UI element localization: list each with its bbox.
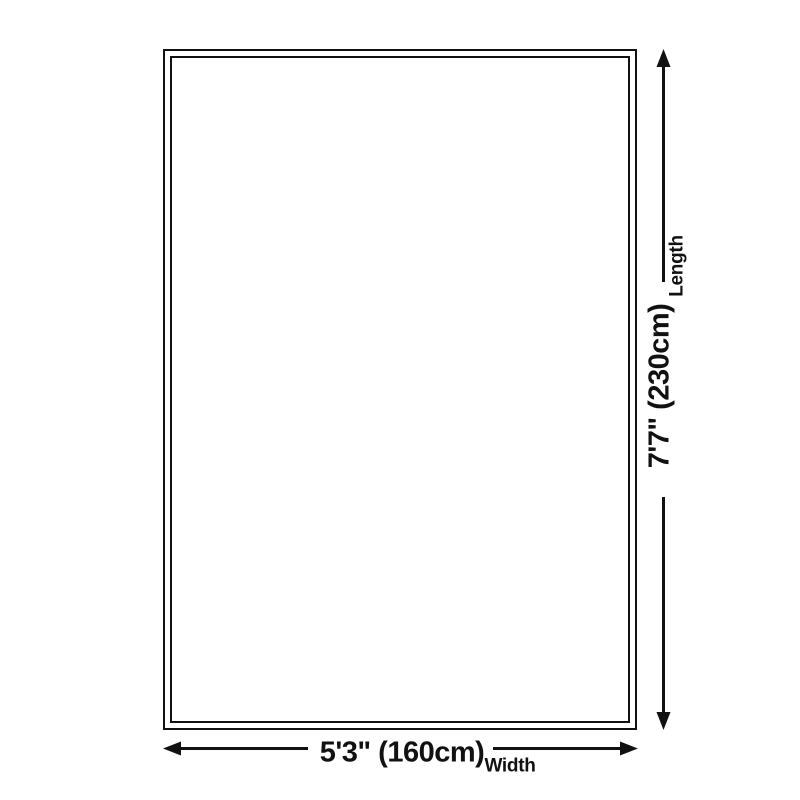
arrow-up-icon bbox=[657, 49, 671, 67]
arrow-right-icon bbox=[620, 742, 638, 756]
arrow-down-icon bbox=[657, 712, 671, 730]
width-value: 5'3" (160cm) bbox=[320, 739, 485, 768]
rug-dimension-diagram: 7'7" (230cm) Length 5'3" (160cm) Width bbox=[0, 0, 800, 800]
length-value: 7'7" (230cm) bbox=[646, 304, 675, 469]
width-label: Width bbox=[484, 757, 535, 776]
arrow-left-icon bbox=[163, 742, 181, 756]
dimension-arrows bbox=[0, 0, 800, 800]
length-label: Length bbox=[668, 235, 687, 297]
